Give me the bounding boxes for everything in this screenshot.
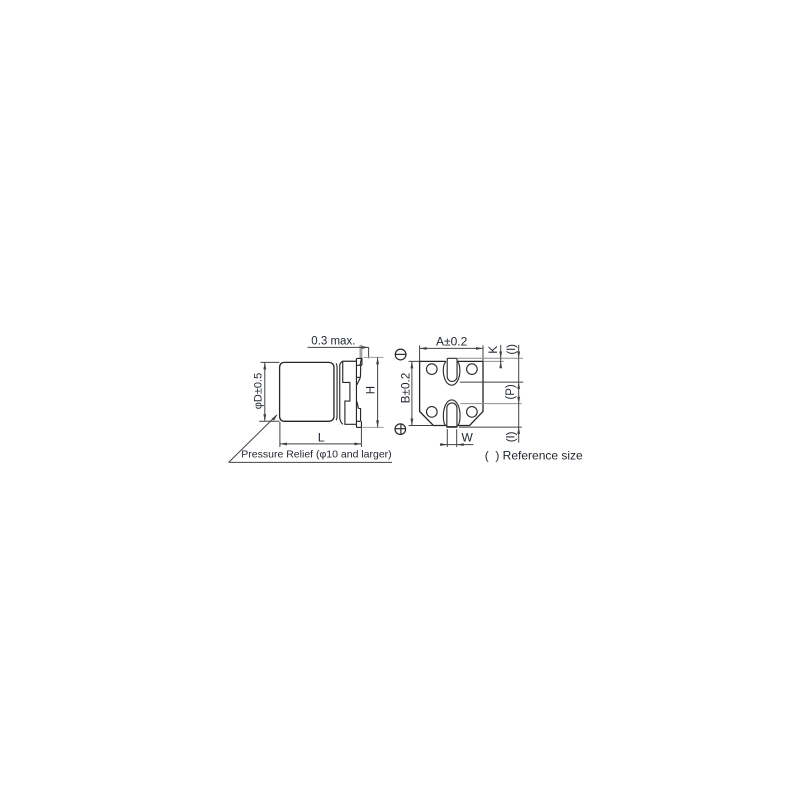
svg-text:0.3 max.: 0.3 max. (311, 336, 355, 348)
svg-text:B±0.2: B±0.2 (399, 373, 413, 404)
svg-text:A±0.2: A±0.2 (436, 334, 468, 348)
svg-text:W: W (462, 430, 474, 444)
svg-text:Pressure Relief (φ10 and large: Pressure Relief (φ10 and larger) (241, 448, 391, 460)
svg-text:K: K (486, 346, 500, 354)
svg-text:( ) Reference size: ( ) Reference size (485, 449, 583, 463)
svg-text:(l): (l) (504, 432, 518, 443)
svg-text:φD±0.5: φD±0.5 (252, 373, 264, 409)
svg-text:(l): (l) (504, 344, 518, 355)
svg-text:(P): (P) (505, 384, 517, 400)
svg-text:L: L (318, 431, 325, 445)
svg-text:H: H (366, 386, 378, 394)
